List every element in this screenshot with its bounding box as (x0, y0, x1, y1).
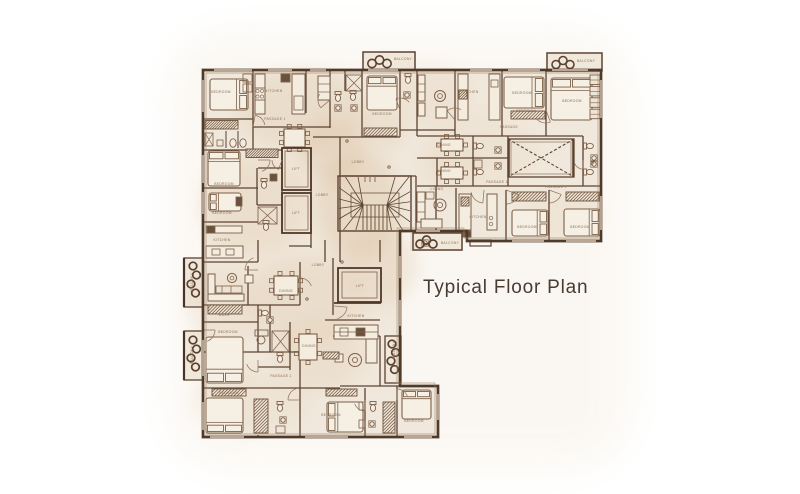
svg-text:DINING: DINING (437, 169, 451, 173)
svg-text:DINING: DINING (302, 344, 316, 348)
svg-text:BEDROOM: BEDROOM (517, 225, 537, 229)
svg-text:KITCHEN: KITCHEN (266, 89, 283, 93)
svg-text:BALCONY: BALCONY (577, 59, 596, 63)
svg-text:BALCONY: BALCONY (441, 241, 460, 245)
svg-text:BEDROOM: BEDROOM (211, 90, 231, 94)
svg-text:PASSAGE 2: PASSAGE 2 (545, 185, 566, 189)
svg-text:BALCONY: BALCONY (190, 345, 194, 364)
svg-text:BEDROOM: BEDROOM (321, 413, 341, 417)
svg-text:KITCHEN: KITCHEN (470, 215, 487, 219)
svg-text:KITCHEN: KITCHEN (214, 238, 231, 242)
svg-text:PASSAGE: PASSAGE (500, 125, 518, 129)
svg-text:LIVING: LIVING (431, 187, 444, 191)
svg-text:DINING: DINING (437, 143, 451, 147)
svg-text:LOBBY: LOBBY (316, 193, 329, 197)
svg-text:LIFT: LIFT (292, 167, 300, 171)
svg-text:PASSAGE 1: PASSAGE 1 (486, 180, 507, 184)
svg-text:BALCONY: BALCONY (394, 57, 413, 61)
svg-text:BEDROOM: BEDROOM (562, 99, 582, 103)
svg-text:BEDROOM: BEDROOM (512, 91, 532, 95)
svg-text:Typical Floor Plan: Typical Floor Plan (423, 277, 588, 298)
svg-text:BEDROOM: BEDROOM (212, 211, 232, 215)
svg-text:KITCHEN: KITCHEN (462, 90, 479, 94)
svg-text:LIFT: LIFT (356, 284, 364, 288)
svg-text:LOBBY: LOBBY (352, 160, 365, 164)
svg-text:PASSAGE 1: PASSAGE 1 (264, 117, 285, 121)
svg-text:PASSAGE 1: PASSAGE 1 (270, 374, 291, 378)
svg-text:BEDROOM: BEDROOM (219, 391, 239, 395)
svg-text:LIFT: LIFT (292, 211, 300, 215)
svg-text:BEDROOM: BEDROOM (218, 330, 238, 334)
svg-text:LOBBY: LOBBY (312, 263, 325, 267)
svg-text:BEDROOM: BEDROOM (570, 225, 590, 229)
svg-text:BEDROOM: BEDROOM (404, 419, 424, 423)
svg-text:BALCONY: BALCONY (190, 272, 194, 291)
svg-text:BEDROOM: BEDROOM (516, 109, 536, 113)
svg-text:BEDROOM: BEDROOM (214, 182, 234, 186)
svg-text:BEDROOM: BEDROOM (372, 112, 392, 116)
svg-text:DINING: DINING (279, 289, 293, 293)
svg-text:BALCONY: BALCONY (392, 340, 396, 359)
svg-text:KITCHEN: KITCHEN (348, 314, 365, 318)
svg-text:WASH: WASH (218, 313, 229, 317)
